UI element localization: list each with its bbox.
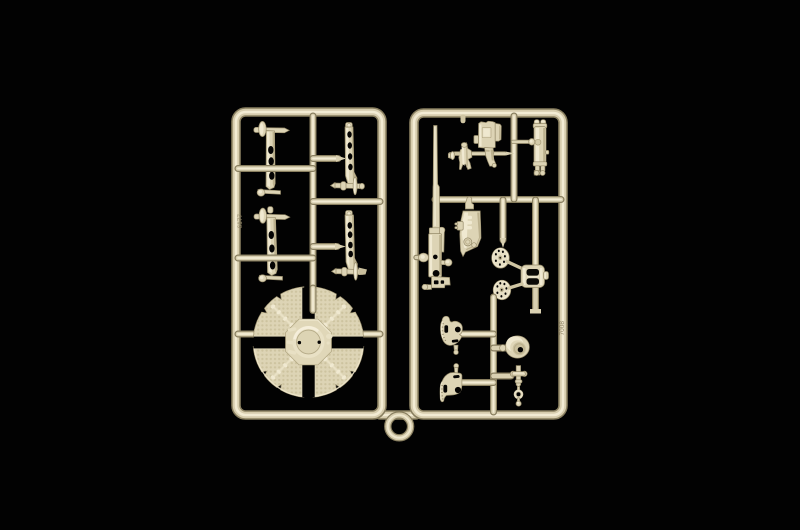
svg-text:7008: 7008 (559, 321, 566, 336)
svg-text:6177: 6177 (237, 214, 244, 229)
